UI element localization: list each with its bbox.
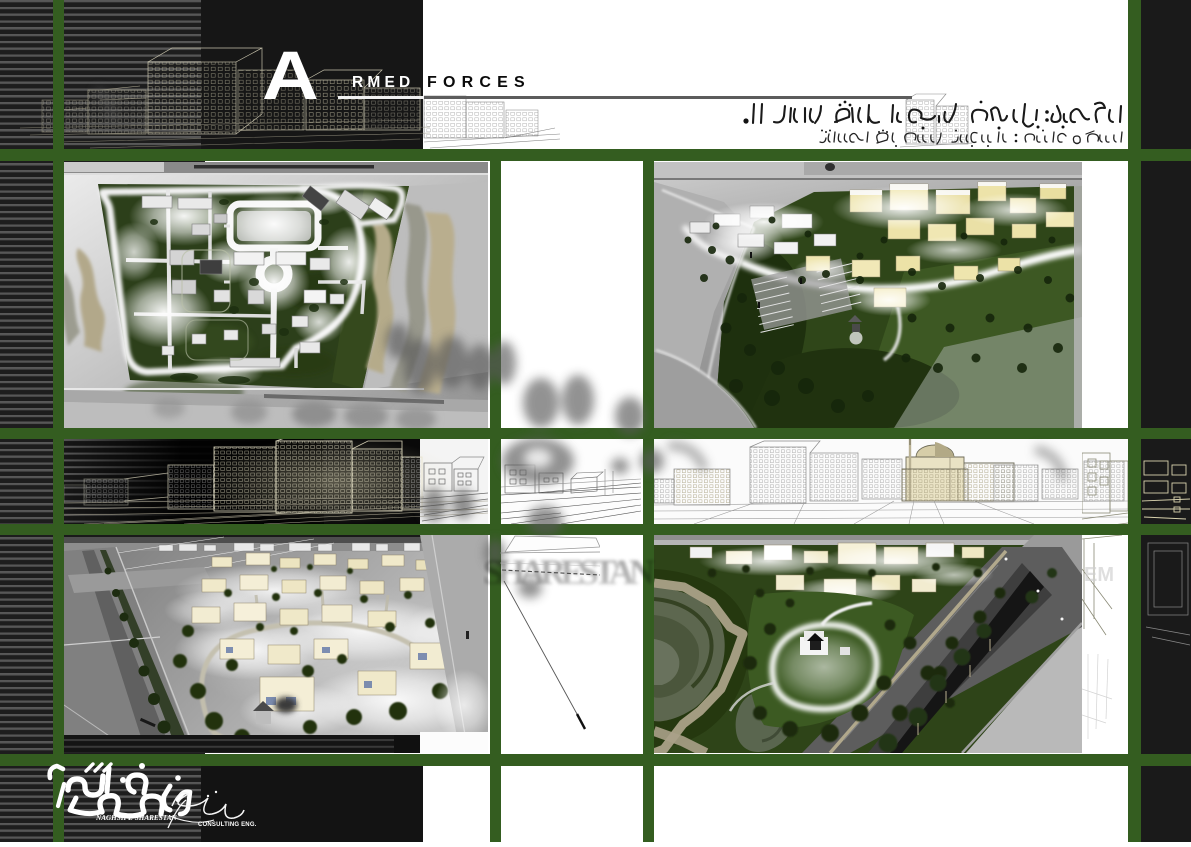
- svg-text:CONSULTING ENG.: CONSULTING ENG.: [198, 822, 257, 828]
- svg-text:EM: EM: [1084, 564, 1114, 586]
- svg-text:NAGHSH E SHARESTAN: NAGHSH E SHARESTAN: [95, 814, 177, 822]
